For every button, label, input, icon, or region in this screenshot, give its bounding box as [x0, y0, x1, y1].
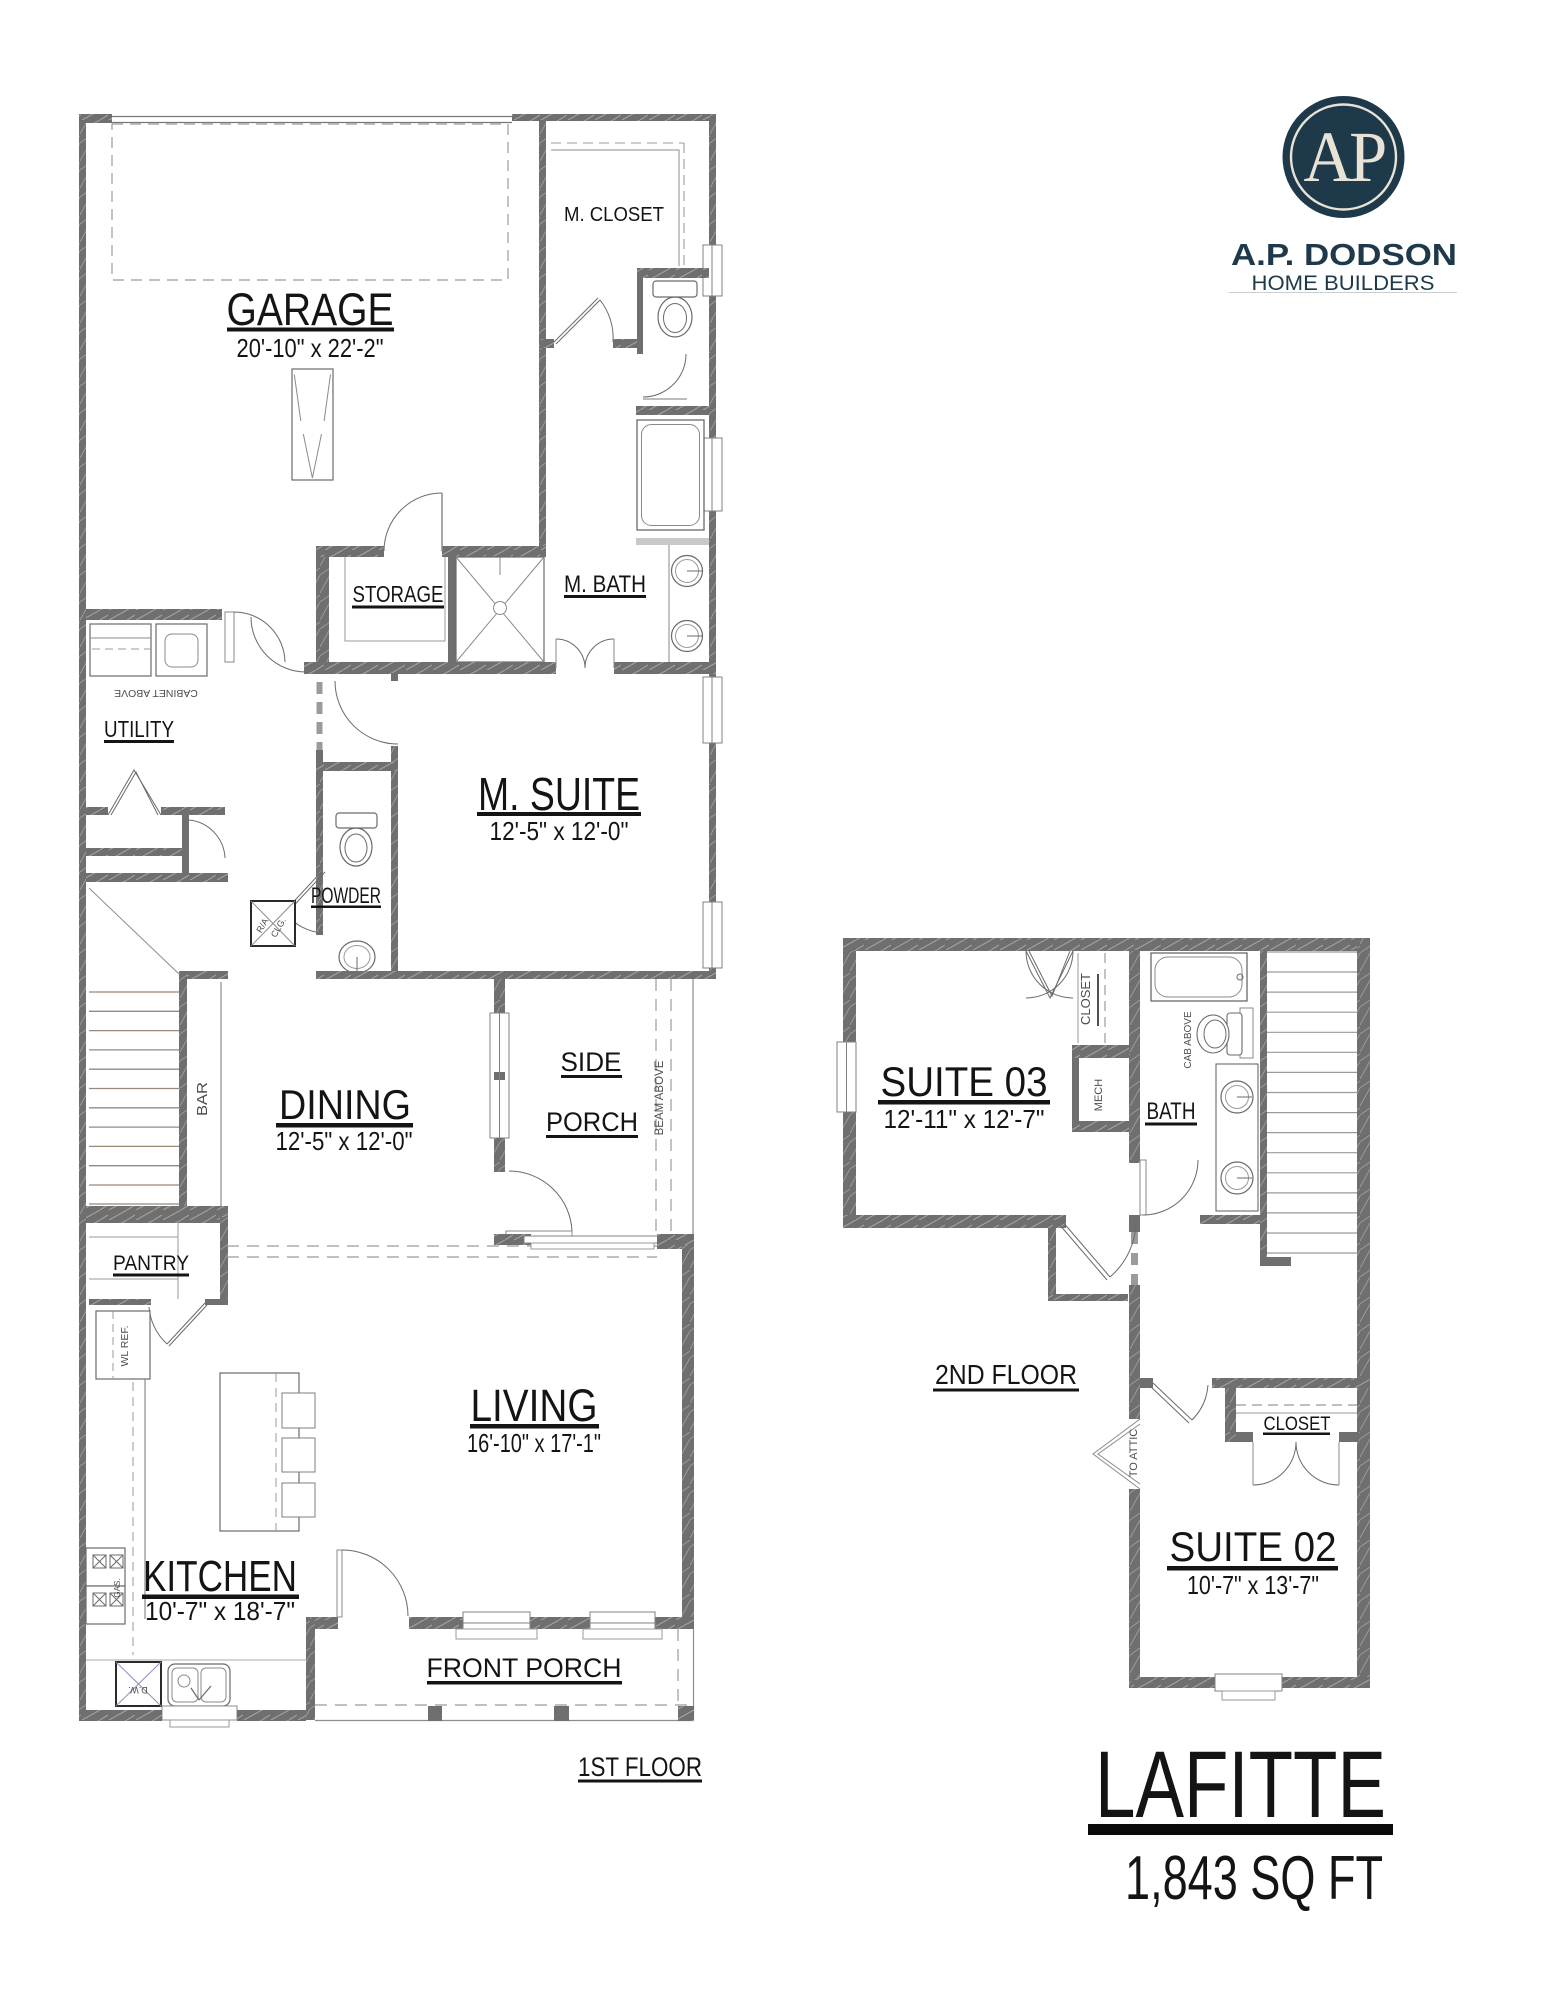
- svg-text:FRONT PORCH: FRONT PORCH: [427, 1653, 622, 1683]
- svg-text:CLOSET: CLOSET: [1078, 973, 1093, 1025]
- svg-text:GAS.: GAS.: [113, 1578, 122, 1597]
- svg-text:HOME BUILDERS: HOME BUILDERS: [1252, 272, 1435, 295]
- svg-text:DINING: DINING: [279, 1081, 411, 1128]
- svg-text:TO ATTIC: TO ATTIC: [1128, 1429, 1140, 1478]
- svg-text:10'-7" x 18'-7": 10'-7" x 18'-7": [145, 1596, 295, 1626]
- svg-text:M. CLOSET: M. CLOSET: [564, 204, 664, 226]
- svg-text:PORCH: PORCH: [546, 1107, 638, 1137]
- svg-text:2ND FLOOR: 2ND FLOOR: [935, 1359, 1077, 1390]
- svg-text:D.W.: D.W.: [128, 1685, 148, 1695]
- svg-text:1ST FLOOR: 1ST FLOOR: [578, 1752, 702, 1782]
- svg-text:1,843 SQ FT: 1,843 SQ FT: [1125, 1844, 1383, 1913]
- svg-text:POWDER: POWDER: [311, 883, 381, 908]
- svg-text:M. BATH: M. BATH: [564, 571, 646, 598]
- svg-text:BATH: BATH: [1147, 1098, 1196, 1125]
- svg-text:12'-11" x 12'-7": 12'-11" x 12'-7": [884, 1104, 1045, 1134]
- svg-text:LAFITTE: LAFITTE: [1095, 1732, 1386, 1838]
- svg-text:16'-10" x 17'-1": 16'-10" x 17'-1": [467, 1428, 601, 1458]
- svg-text:10'-7" x 13'-7": 10'-7" x 13'-7": [1187, 1570, 1319, 1600]
- svg-text:BAR: BAR: [194, 1082, 211, 1116]
- svg-text:UTILITY: UTILITY: [104, 716, 174, 742]
- svg-text:BEAM ABOVE: BEAM ABOVE: [654, 1060, 666, 1135]
- svg-text:A.P. DODSON: A.P. DODSON: [1231, 237, 1457, 272]
- svg-text:WL REF.: WL REF.: [119, 1325, 131, 1366]
- svg-text:CAB ABOVE: CAB ABOVE: [1183, 1011, 1194, 1069]
- svg-text:SUITE 03: SUITE 03: [881, 1058, 1048, 1105]
- svg-text:SUITE 02: SUITE 02: [1170, 1523, 1337, 1570]
- svg-text:STORAGE: STORAGE: [353, 581, 444, 607]
- svg-text:CABINET ABOVE: CABINET ABOVE: [114, 687, 198, 699]
- svg-text:GARAGE: GARAGE: [227, 284, 394, 335]
- svg-text:20'-10" x 22'-2": 20'-10" x 22'-2": [237, 333, 384, 363]
- svg-text:CLOSET: CLOSET: [1264, 1414, 1331, 1435]
- svg-text:12'-5" x 12'-0": 12'-5" x 12'-0": [276, 1126, 413, 1156]
- svg-text:LIVING: LIVING: [471, 1380, 598, 1431]
- svg-text:SIDE: SIDE: [561, 1047, 622, 1077]
- svg-text:PANTRY: PANTRY: [113, 1252, 189, 1275]
- svg-text:AP: AP: [1304, 117, 1386, 197]
- svg-text:12'-5" x 12'-0": 12'-5" x 12'-0": [490, 816, 629, 846]
- svg-text:MECH: MECH: [1093, 1079, 1105, 1111]
- svg-text:KITCHEN: KITCHEN: [143, 1552, 297, 1601]
